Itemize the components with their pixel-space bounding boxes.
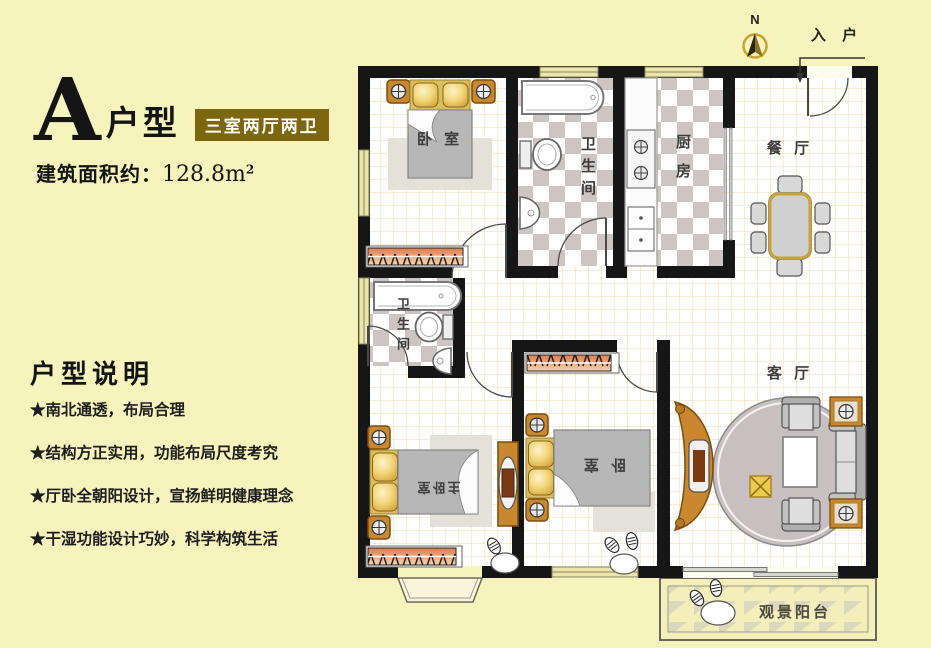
coffee-table bbox=[783, 437, 817, 487]
lamp-icon bbox=[392, 85, 406, 99]
end-table bbox=[830, 499, 862, 528]
armchair bbox=[782, 397, 820, 430]
bathtub bbox=[374, 282, 461, 310]
bay-window bbox=[398, 578, 482, 602]
room-label-bedroom-bottom: 卧 室 bbox=[563, 455, 643, 476]
page: A 户型 三室两厅两卫 建筑面积约：128.8m2 户型说明 ★南北通透，布局合… bbox=[0, 0, 931, 648]
radiator bbox=[525, 353, 619, 373]
room-label-dining: 餐 厅 bbox=[750, 137, 830, 158]
unit-type-letter: A bbox=[34, 76, 101, 147]
toilet bbox=[416, 313, 454, 342]
building-area: 建筑面积约：128.8m2 bbox=[36, 158, 255, 187]
room-label-balcony: 观景阳台 bbox=[733, 601, 857, 622]
unit-type-title: A 户型 三室两厅两卫 bbox=[34, 76, 329, 147]
entrance-label: 入 户 bbox=[797, 24, 877, 45]
floor-mat bbox=[610, 554, 638, 574]
kitchen-fixtures bbox=[625, 78, 657, 266]
description-item: ★结构方正实用，功能布局尺度考究 bbox=[30, 441, 330, 463]
stove bbox=[627, 130, 655, 188]
compass-label: N bbox=[745, 12, 765, 27]
dining-table bbox=[770, 194, 810, 258]
description-list: ★南北通透，布局合理 ★结构方正实用，功能布局尺度考究 ★厅卧全朝阳设计，宣扬鲜… bbox=[30, 398, 330, 570]
floor-plan-svg bbox=[341, 10, 931, 648]
compass-icon bbox=[744, 33, 767, 58]
room-label-master-bedroom: 主卧室 bbox=[398, 479, 478, 498]
description-item: ★南北通透，布局合理 bbox=[30, 398, 330, 420]
building-area-label: 建筑面积约： bbox=[36, 164, 162, 186]
room-label-bathroom-mid: 卫生间 bbox=[393, 297, 412, 357]
dresser-tv bbox=[498, 442, 518, 526]
balcony-sliding-door bbox=[683, 566, 838, 578]
side-table bbox=[750, 476, 771, 497]
lamp-icon bbox=[839, 507, 853, 521]
description-item: ★厅卧全朝阳设计，宣扬鲜明健康理念 bbox=[30, 484, 330, 506]
entrance-opening bbox=[807, 66, 852, 78]
floor-mat bbox=[491, 553, 519, 573]
lamp-icon bbox=[530, 418, 544, 432]
floor-mat bbox=[701, 601, 735, 625]
room-label-kitchen: 厨房 bbox=[672, 134, 693, 192]
unit-type-suffix: 户型 bbox=[106, 96, 180, 145]
kitchen-sink bbox=[628, 207, 654, 251]
layout-badge: 三室两厅两卫 bbox=[195, 109, 329, 141]
building-area-sup: 2 bbox=[246, 162, 255, 176]
room-label-bedroom-top: 卧 室 bbox=[400, 128, 480, 149]
radiator bbox=[366, 546, 462, 567]
room-label-living: 客 厅 bbox=[750, 362, 830, 383]
lamp-icon bbox=[477, 85, 491, 99]
armchair bbox=[782, 498, 820, 531]
lamp-icon bbox=[372, 431, 386, 445]
toilet bbox=[520, 139, 561, 170]
end-table bbox=[830, 397, 862, 426]
description-item: ★干湿功能设计巧妙，科学构筑生活 bbox=[30, 527, 330, 549]
description-title: 户型说明 bbox=[30, 354, 154, 391]
lamp-icon bbox=[372, 521, 386, 535]
radiator bbox=[366, 246, 468, 267]
bathtub bbox=[522, 81, 604, 114]
building-area-value: 128.8m bbox=[162, 162, 246, 187]
floor-plan: N 入 户 卧 室 卫生间 厨房 餐 厅 卫生间 主卧室 卧 室 客 厅 观景阳… bbox=[341, 10, 931, 648]
lamp-icon bbox=[530, 503, 544, 517]
room-label-bathroom-top: 卫生间 bbox=[577, 136, 598, 202]
lamp-icon bbox=[839, 405, 853, 419]
